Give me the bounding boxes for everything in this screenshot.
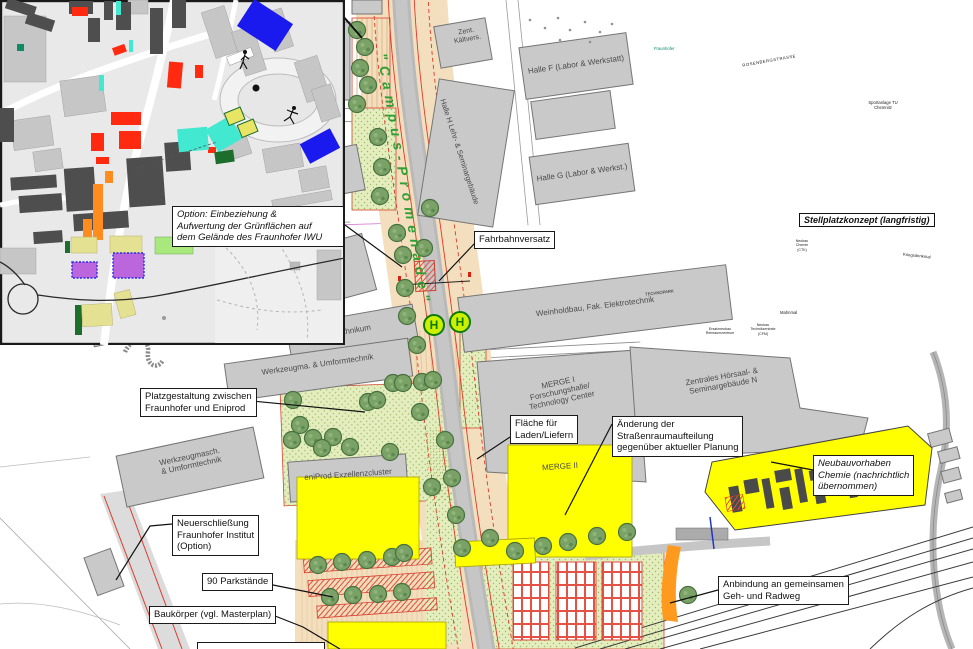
basketball-icon [253,85,260,92]
fraunhofer-logo-mark [17,44,24,51]
site-plan-canvas: Institut für Physik Trafo Laborhalle/ Sc… [0,0,973,649]
inset-map [0,0,345,345]
crosswalk-fahrbahnversatz [414,260,436,291]
orange-footpath [662,545,681,622]
mahnmal-mark [162,316,166,320]
